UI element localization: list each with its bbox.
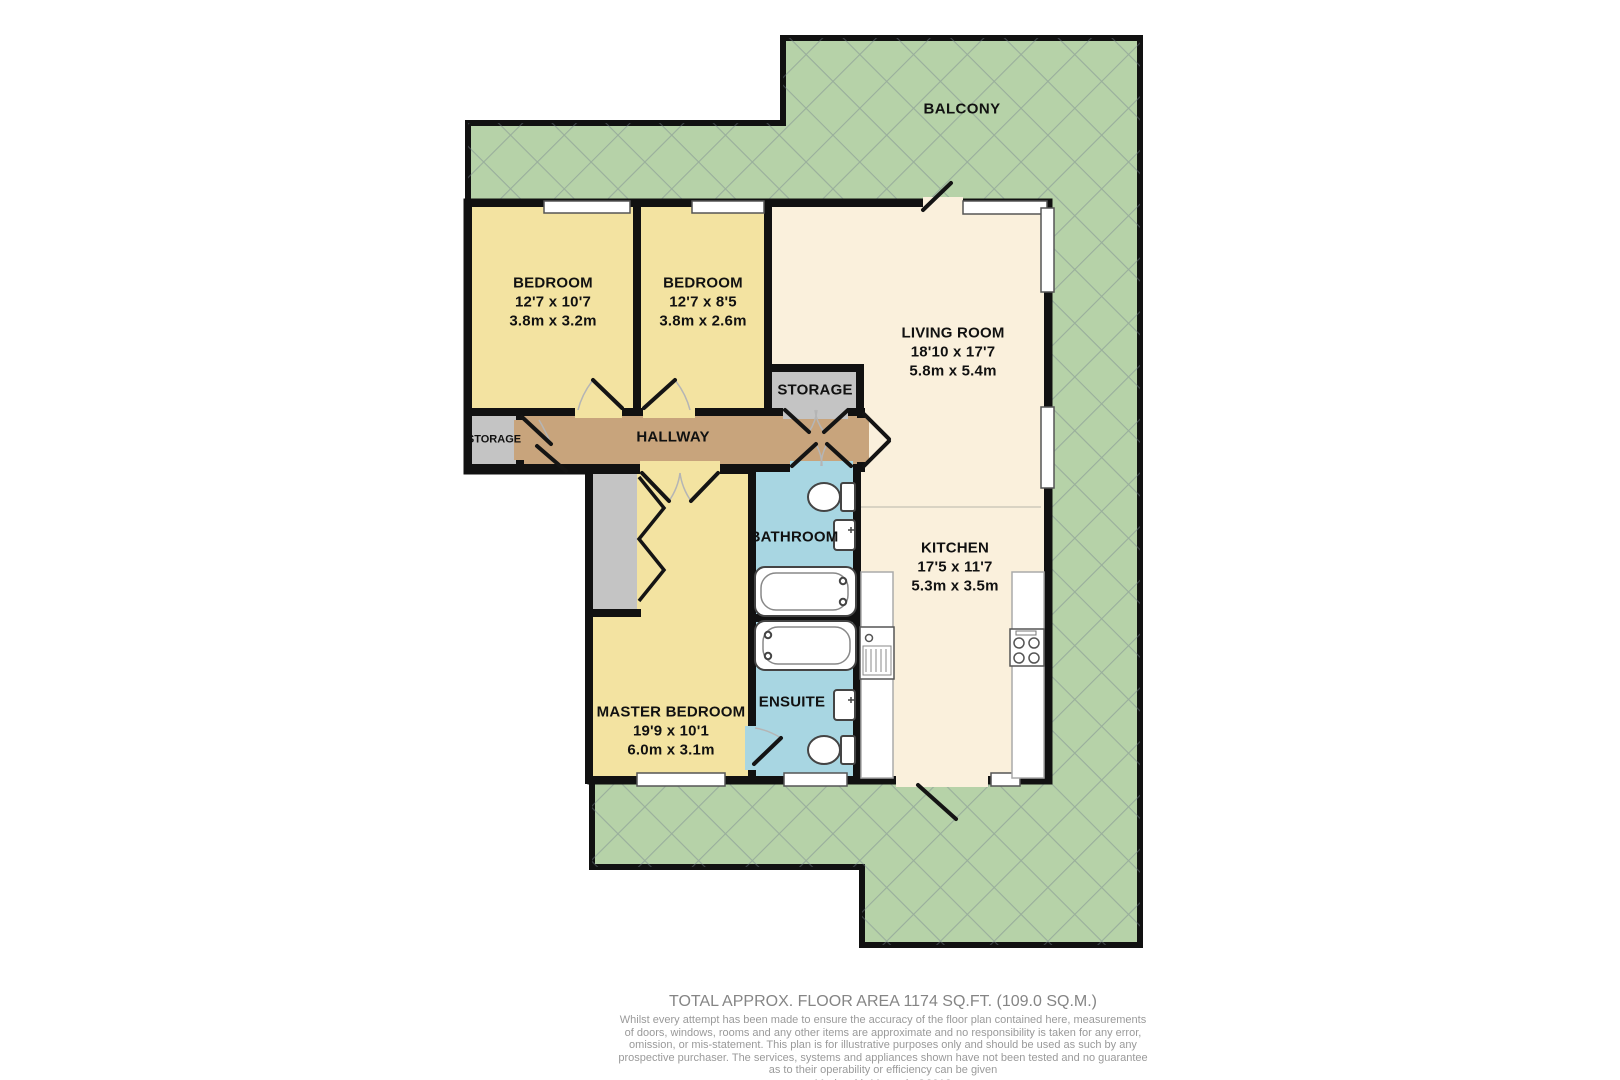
- wardrobe-area: [593, 474, 637, 612]
- room-dim-metric: 5.3m x 3.5m: [911, 577, 998, 596]
- storage-small-label: STORAGE: [467, 431, 521, 450]
- toilet-tank-icon: [841, 483, 855, 511]
- sink-icon: [834, 690, 855, 720]
- window: [784, 773, 847, 786]
- kitchen-sink-icon: [860, 627, 894, 679]
- bathroom-label: BATHROOM: [750, 528, 839, 547]
- footer: TOTAL APPROX. FLOOR AREA 1174 SQ.FT. (10…: [618, 993, 1147, 1080]
- room-dim-imperial: 17'5 x 11'7: [911, 558, 998, 577]
- room-dim-imperial: 12'7 x 10'7: [509, 293, 596, 312]
- living-room-label: LIVING ROOM 18'10 x 17'7 5.8m x 5.4m: [901, 324, 1004, 381]
- window: [692, 201, 764, 213]
- room-dim-imperial: 18'10 x 17'7: [901, 343, 1004, 362]
- room-name: BEDROOM: [509, 274, 596, 293]
- disclaimer-line: prospective purchaser. The services, sys…: [618, 1052, 1147, 1065]
- toilet-tank-icon: [841, 736, 855, 764]
- ensuite-label: ENSUITE: [759, 693, 825, 712]
- room-dim-metric: 6.0m x 3.1m: [597, 741, 746, 760]
- window: [1041, 208, 1054, 292]
- total-floor-area: TOTAL APPROX. FLOOR AREA 1174 SQ.FT. (10…: [618, 993, 1147, 1011]
- disclaimer-line: Whilst every attempt has been made to en…: [618, 1014, 1147, 1027]
- room-name: MASTER BEDROOM: [597, 703, 746, 722]
- window: [963, 201, 1047, 214]
- window: [544, 201, 630, 213]
- disclaimer-line: omission, or mis-statement. This plan is…: [618, 1039, 1147, 1052]
- window: [637, 773, 725, 786]
- room-dim-metric: 3.8m x 2.6m: [659, 312, 746, 331]
- room-name: BEDROOM: [659, 274, 746, 293]
- toilet-icon: [808, 736, 840, 764]
- room-dim-metric: 3.8m x 3.2m: [509, 312, 596, 331]
- room-dim-imperial: 19'9 x 10'1: [597, 722, 746, 741]
- room-name: LIVING ROOM: [901, 324, 1004, 343]
- room-name: KITCHEN: [911, 539, 998, 558]
- disclaimer-line: as to their operability or efficiency ca…: [618, 1064, 1147, 1077]
- kitchen-label: KITCHEN 17'5 x 11'7 5.3m x 3.5m: [911, 539, 998, 596]
- window: [1041, 407, 1054, 488]
- bedroom2-label: BEDROOM 12'7 x 8'5 3.8m x 2.6m: [659, 274, 746, 331]
- balcony-label: BALCONY: [924, 100, 1001, 119]
- room-dim-imperial: 12'7 x 8'5: [659, 293, 746, 312]
- master-bedroom-label: MASTER BEDROOM 19'9 x 10'1 6.0m x 3.1m: [597, 703, 746, 760]
- counter: [1012, 572, 1044, 778]
- bedroom1-label: BEDROOM 12'7 x 10'7 3.8m x 3.2m: [509, 274, 596, 331]
- storage-main-label: STORAGE: [777, 381, 852, 400]
- room-dim-metric: 5.8m x 5.4m: [901, 362, 1004, 381]
- toilet-icon: [808, 483, 840, 511]
- disclaimer-line: of doors, windows, rooms and any other i…: [618, 1027, 1147, 1040]
- hallway-label: HALLWAY: [636, 428, 709, 447]
- floorplan-page: BALCONY BEDROOM 12'7 x 10'7 3.8m x 3.2m …: [0, 0, 1620, 1080]
